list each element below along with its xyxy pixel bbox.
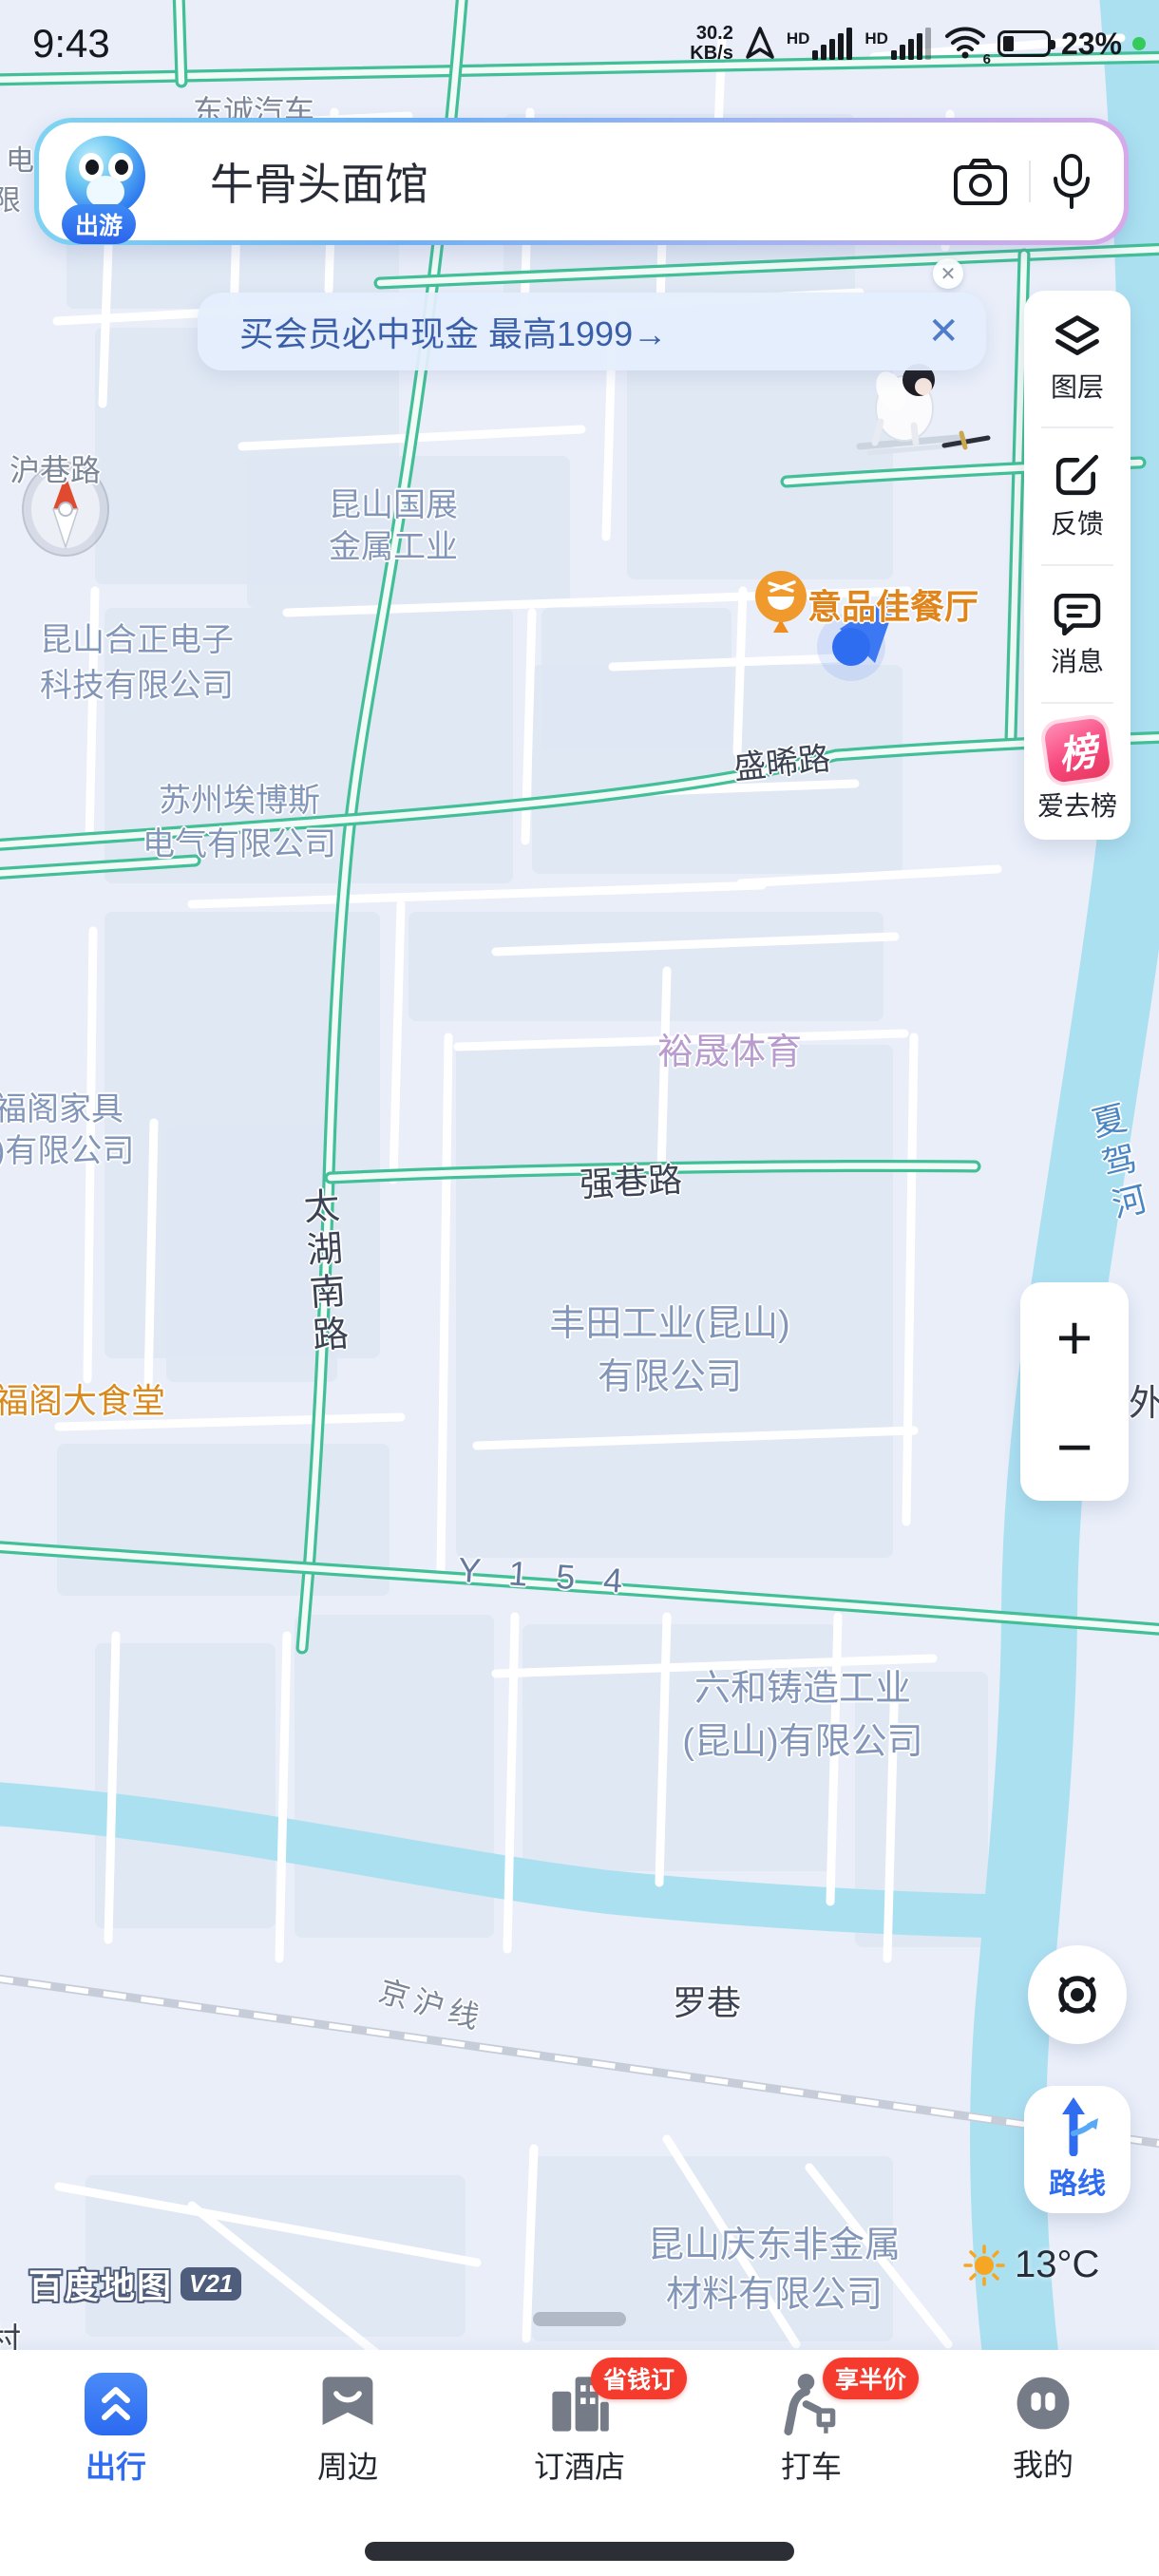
layers-label: 图层 (1051, 367, 1104, 405)
nav-hotel[interactable]: 省钱订 订酒店 (503, 2373, 655, 2487)
poi-label: 福阁大食堂 (0, 1373, 165, 1423)
search-input[interactable]: 牛骨头面馆 (210, 150, 428, 213)
promo-banner-text[interactable]: 买会员必中现金 最高1999→ (239, 307, 667, 356)
nav-nearby[interactable]: 周边 (272, 2373, 424, 2487)
map-canvas[interactable] (0, 0, 1159, 2576)
battery-percent: 23% (1061, 27, 1122, 62)
signal-sim1: HD (787, 28, 855, 60)
message-bubble-icon (1054, 590, 1101, 635)
baidu-maps-app: 沪巷路 东诚汽车 昆山国展 金属工业 昆山合正电子 科技有限公司 苏州埃博斯 电… (0, 0, 1159, 2576)
camera-icon[interactable] (953, 157, 1008, 206)
nav-profile[interactable]: 我的 (967, 2373, 1119, 2485)
map-tools-panel: 图层 反馈 消息 榜 爱去榜 (1024, 291, 1130, 840)
poi-label: 六和铸造工业 (昆山)有限公司 (646, 1662, 959, 1769)
battery-icon (997, 30, 1051, 57)
trip-chevrons-icon (85, 2373, 147, 2435)
map-attribution: 百度地图 V21 (28, 2259, 241, 2308)
nav-profile-label: 我的 (1013, 2441, 1073, 2485)
search-bar[interactable]: 出游 牛骨头面馆 (34, 118, 1129, 245)
status-bar: 9:43 30.2 KB/s HD HD (0, 0, 1159, 87)
poi-label: 福阁家具 )有限公司 (0, 1089, 134, 1172)
nearby-badge-icon (318, 2373, 377, 2435)
restaurant-poi-pin[interactable] (755, 571, 807, 633)
poi-label: 丰田工业(昆山) 有限公司 (532, 1297, 807, 1404)
profile-face-icon (1013, 2373, 1073, 2434)
messages-button[interactable]: 消息 (1024, 566, 1130, 702)
sheet-drag-handle[interactable] (533, 2312, 626, 2326)
mascot-badge: 出游 (62, 204, 136, 244)
crosshair-target-icon (1050, 1967, 1105, 2022)
nav-hotel-label: 订酒店 (534, 2443, 625, 2487)
nav-trip-label: 出行 (85, 2443, 146, 2487)
poi-label: 裕晟体育 (657, 1022, 802, 1074)
nav-hotel-badge: 省钱订 (591, 2358, 687, 2399)
route-button[interactable]: 路线 (1024, 2086, 1130, 2213)
poi-label: 昆山国展 金属工业 (329, 484, 458, 568)
restaurant-poi-label[interactable]: 意品佳餐厅 (807, 579, 978, 629)
nav-taxi-badge: 享半价 (823, 2358, 919, 2399)
signal-sim2: HD (864, 28, 933, 60)
zoom-panel: + − (1020, 1282, 1129, 1501)
home-indicator (365, 2542, 794, 2561)
road-label: 沪巷路 (9, 446, 101, 490)
brand-logo: 百度地图 (28, 2259, 173, 2308)
poi-label: 昆山庆东非金属 材料有限公司 (622, 2221, 926, 2320)
sun-icon (963, 2245, 1005, 2286)
road-label: 外 (1129, 1373, 1159, 1426)
net-speed-unit: KB/s (690, 44, 733, 64)
gps-arrow-icon (744, 27, 776, 61)
messages-label: 消息 (1051, 641, 1104, 679)
poi-label: 苏州埃博斯 电气有限公司 (142, 779, 336, 866)
poi-label: 昆山合正电子 科技有限公司 (40, 617, 234, 709)
feedback-edit-icon (1054, 452, 1101, 498)
temperature: 13°C (1015, 2244, 1099, 2286)
weather-widget: 13°C (963, 2244, 1099, 2286)
edge-label: 限 (0, 177, 21, 218)
banner-close-icon[interactable]: ✕ (927, 310, 959, 353)
camera-indicator-dot (1132, 37, 1146, 50)
edge-label: 电 (6, 137, 34, 179)
nav-trip[interactable]: 出行 (40, 2373, 192, 2487)
banner-collapse-button[interactable]: ✕ (933, 258, 963, 289)
road-label: 强巷路 (579, 1152, 684, 1207)
place-label: 罗巷 (673, 1976, 741, 2025)
nav-nearby-label: 周边 (317, 2443, 378, 2487)
locate-button[interactable] (1028, 1945, 1127, 2044)
route-label: 路线 (1049, 2160, 1106, 2202)
zoom-in-button[interactable]: + (1056, 1306, 1093, 1369)
bang-ranking-icon: 榜 (1043, 716, 1111, 783)
net-speed-value: 30.2 (690, 24, 733, 44)
version-badge: V21 (180, 2267, 241, 2301)
layers-button[interactable]: 图层 (1024, 291, 1130, 426)
feedback-button[interactable]: 反馈 (1024, 428, 1130, 564)
nav-taxi[interactable]: 享半价 打车 (735, 2373, 887, 2487)
wifi-icon: 6 (943, 25, 987, 64)
zoom-out-button[interactable]: − (1056, 1415, 1093, 1478)
skier-character (860, 364, 988, 453)
microphone-icon[interactable] (1052, 154, 1092, 209)
ranking-button[interactable]: 榜 爱去榜 (1024, 704, 1130, 840)
promo-banner[interactable]: 买会员必中现金 最高1999→ ✕ (198, 293, 986, 370)
ranking-label: 爱去榜 (1037, 786, 1117, 824)
clock: 9:43 (32, 21, 110, 66)
nav-taxi-label: 打车 (781, 2443, 842, 2487)
layers-icon (1053, 313, 1102, 361)
feedback-label: 反馈 (1051, 503, 1104, 541)
route-arrow-icon (1053, 2097, 1102, 2156)
